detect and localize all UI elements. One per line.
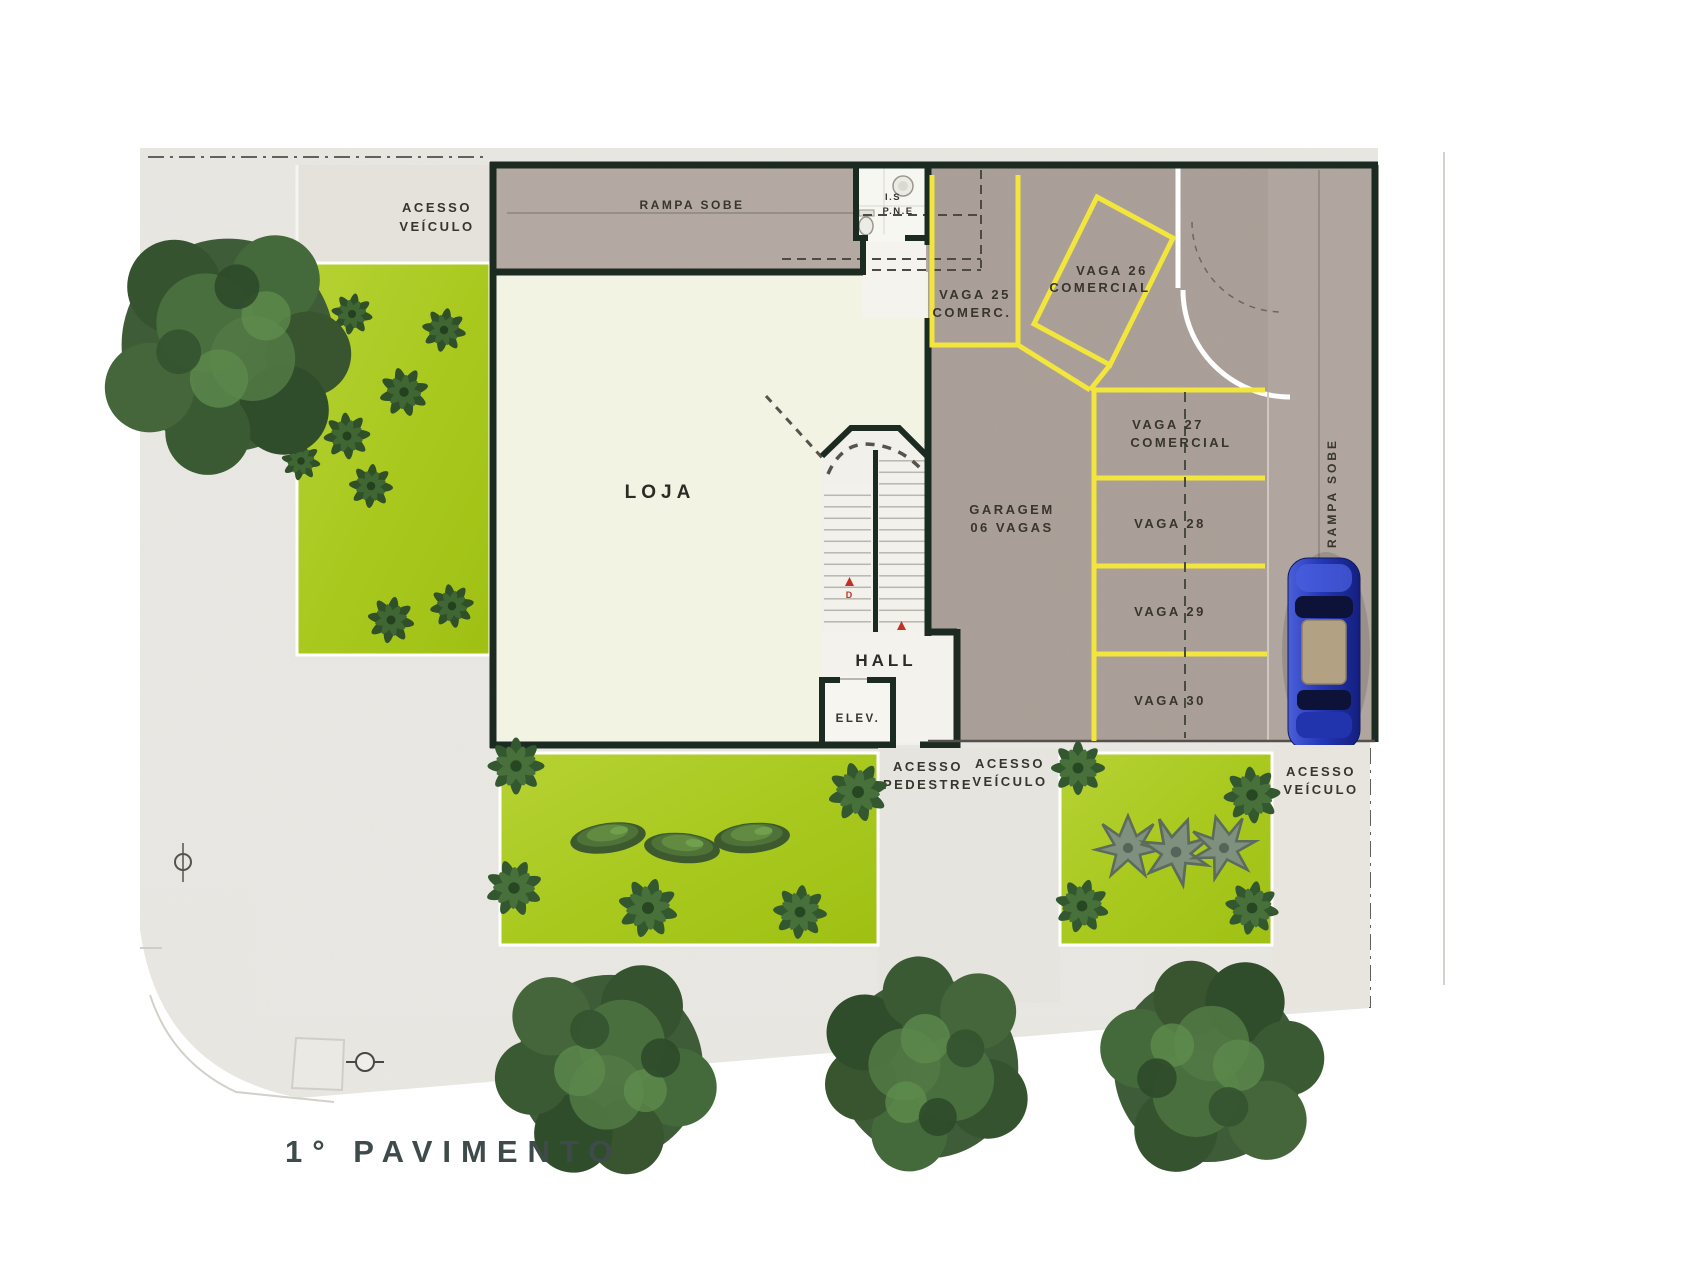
utility-box — [292, 1038, 344, 1090]
ramp-top-label: RAMPA SOBE — [639, 198, 744, 212]
center-garden — [477, 738, 899, 951]
vaga26-label-1: VAGA 26 — [1076, 263, 1148, 278]
stair-down-label: D — [846, 590, 853, 600]
vaga29-label: VAGA 29 — [1134, 604, 1206, 619]
vaga27-label-1: VAGA 27 — [1132, 417, 1204, 432]
access-vehicle-top-label-1: ACESSO — [402, 200, 472, 215]
bathroom-label-1: I.S — [885, 192, 901, 203]
vaga28-label: VAGA 28 — [1134, 516, 1206, 531]
garage-label-1: GARAGEM — [969, 502, 1054, 517]
car-rear-window — [1297, 690, 1351, 710]
car-hood — [1296, 564, 1352, 592]
access-vehicle-center-label-2: VEÍCULO — [972, 774, 1047, 789]
access-vehicle-right-label-1: ACESSO — [1286, 764, 1356, 779]
stair-flight-left — [824, 486, 871, 632]
elevator: ELEV. — [822, 679, 893, 745]
access-vehicle-center-label-1: ACESSO — [975, 756, 1045, 771]
right-garden — [1045, 741, 1292, 945]
stair-flight-right — [879, 456, 926, 632]
ramp-side-label: RAMPA SOBE — [1325, 438, 1339, 548]
vaga25-label-2: COMERC. — [933, 305, 1012, 320]
stair-divider-wall — [873, 450, 878, 632]
car-trunk — [1296, 712, 1352, 738]
vaga27-label-2: COMERCIAL — [1130, 435, 1231, 450]
floor-plan-drawing: ACESSO VEÍCULO RAMPA SOBE LOJA — [0, 0, 1706, 1280]
elevator-label: ELEV. — [836, 713, 881, 725]
vaga30-label: VAGA 30 — [1134, 693, 1206, 708]
page-title: 1° PAVIMENTO — [285, 1134, 622, 1169]
access-vehicle-top-label-2: VEÍCULO — [399, 219, 474, 234]
access-vehicle-right-label-2: VEÍCULO — [1283, 782, 1358, 797]
garage-label-2: 06 VAGAS — [970, 520, 1053, 535]
vehicle-access-top: ACESSO VEÍCULO — [297, 165, 490, 263]
access-pedestrian-label-1: ACESSO — [893, 759, 963, 774]
vaga25-label-1: VAGA 25 — [939, 287, 1011, 302]
car-roof — [1302, 620, 1346, 684]
vaga26-label-2: COMERCIAL — [1049, 280, 1150, 295]
floor-plan-page: ACESSO VEÍCULO RAMPA SOBE LOJA — [0, 0, 1706, 1280]
vestibule — [862, 240, 926, 318]
access-pedestrian-label-2: PEDESTRE — [883, 777, 973, 792]
accessible-bathroom: I.S P.N.E — [856, 165, 928, 238]
car — [1282, 552, 1370, 752]
loja-label: LOJA — [625, 482, 696, 503]
hall-label: HALL — [855, 651, 916, 670]
car-windshield — [1295, 596, 1353, 618]
toilet — [859, 217, 873, 235]
